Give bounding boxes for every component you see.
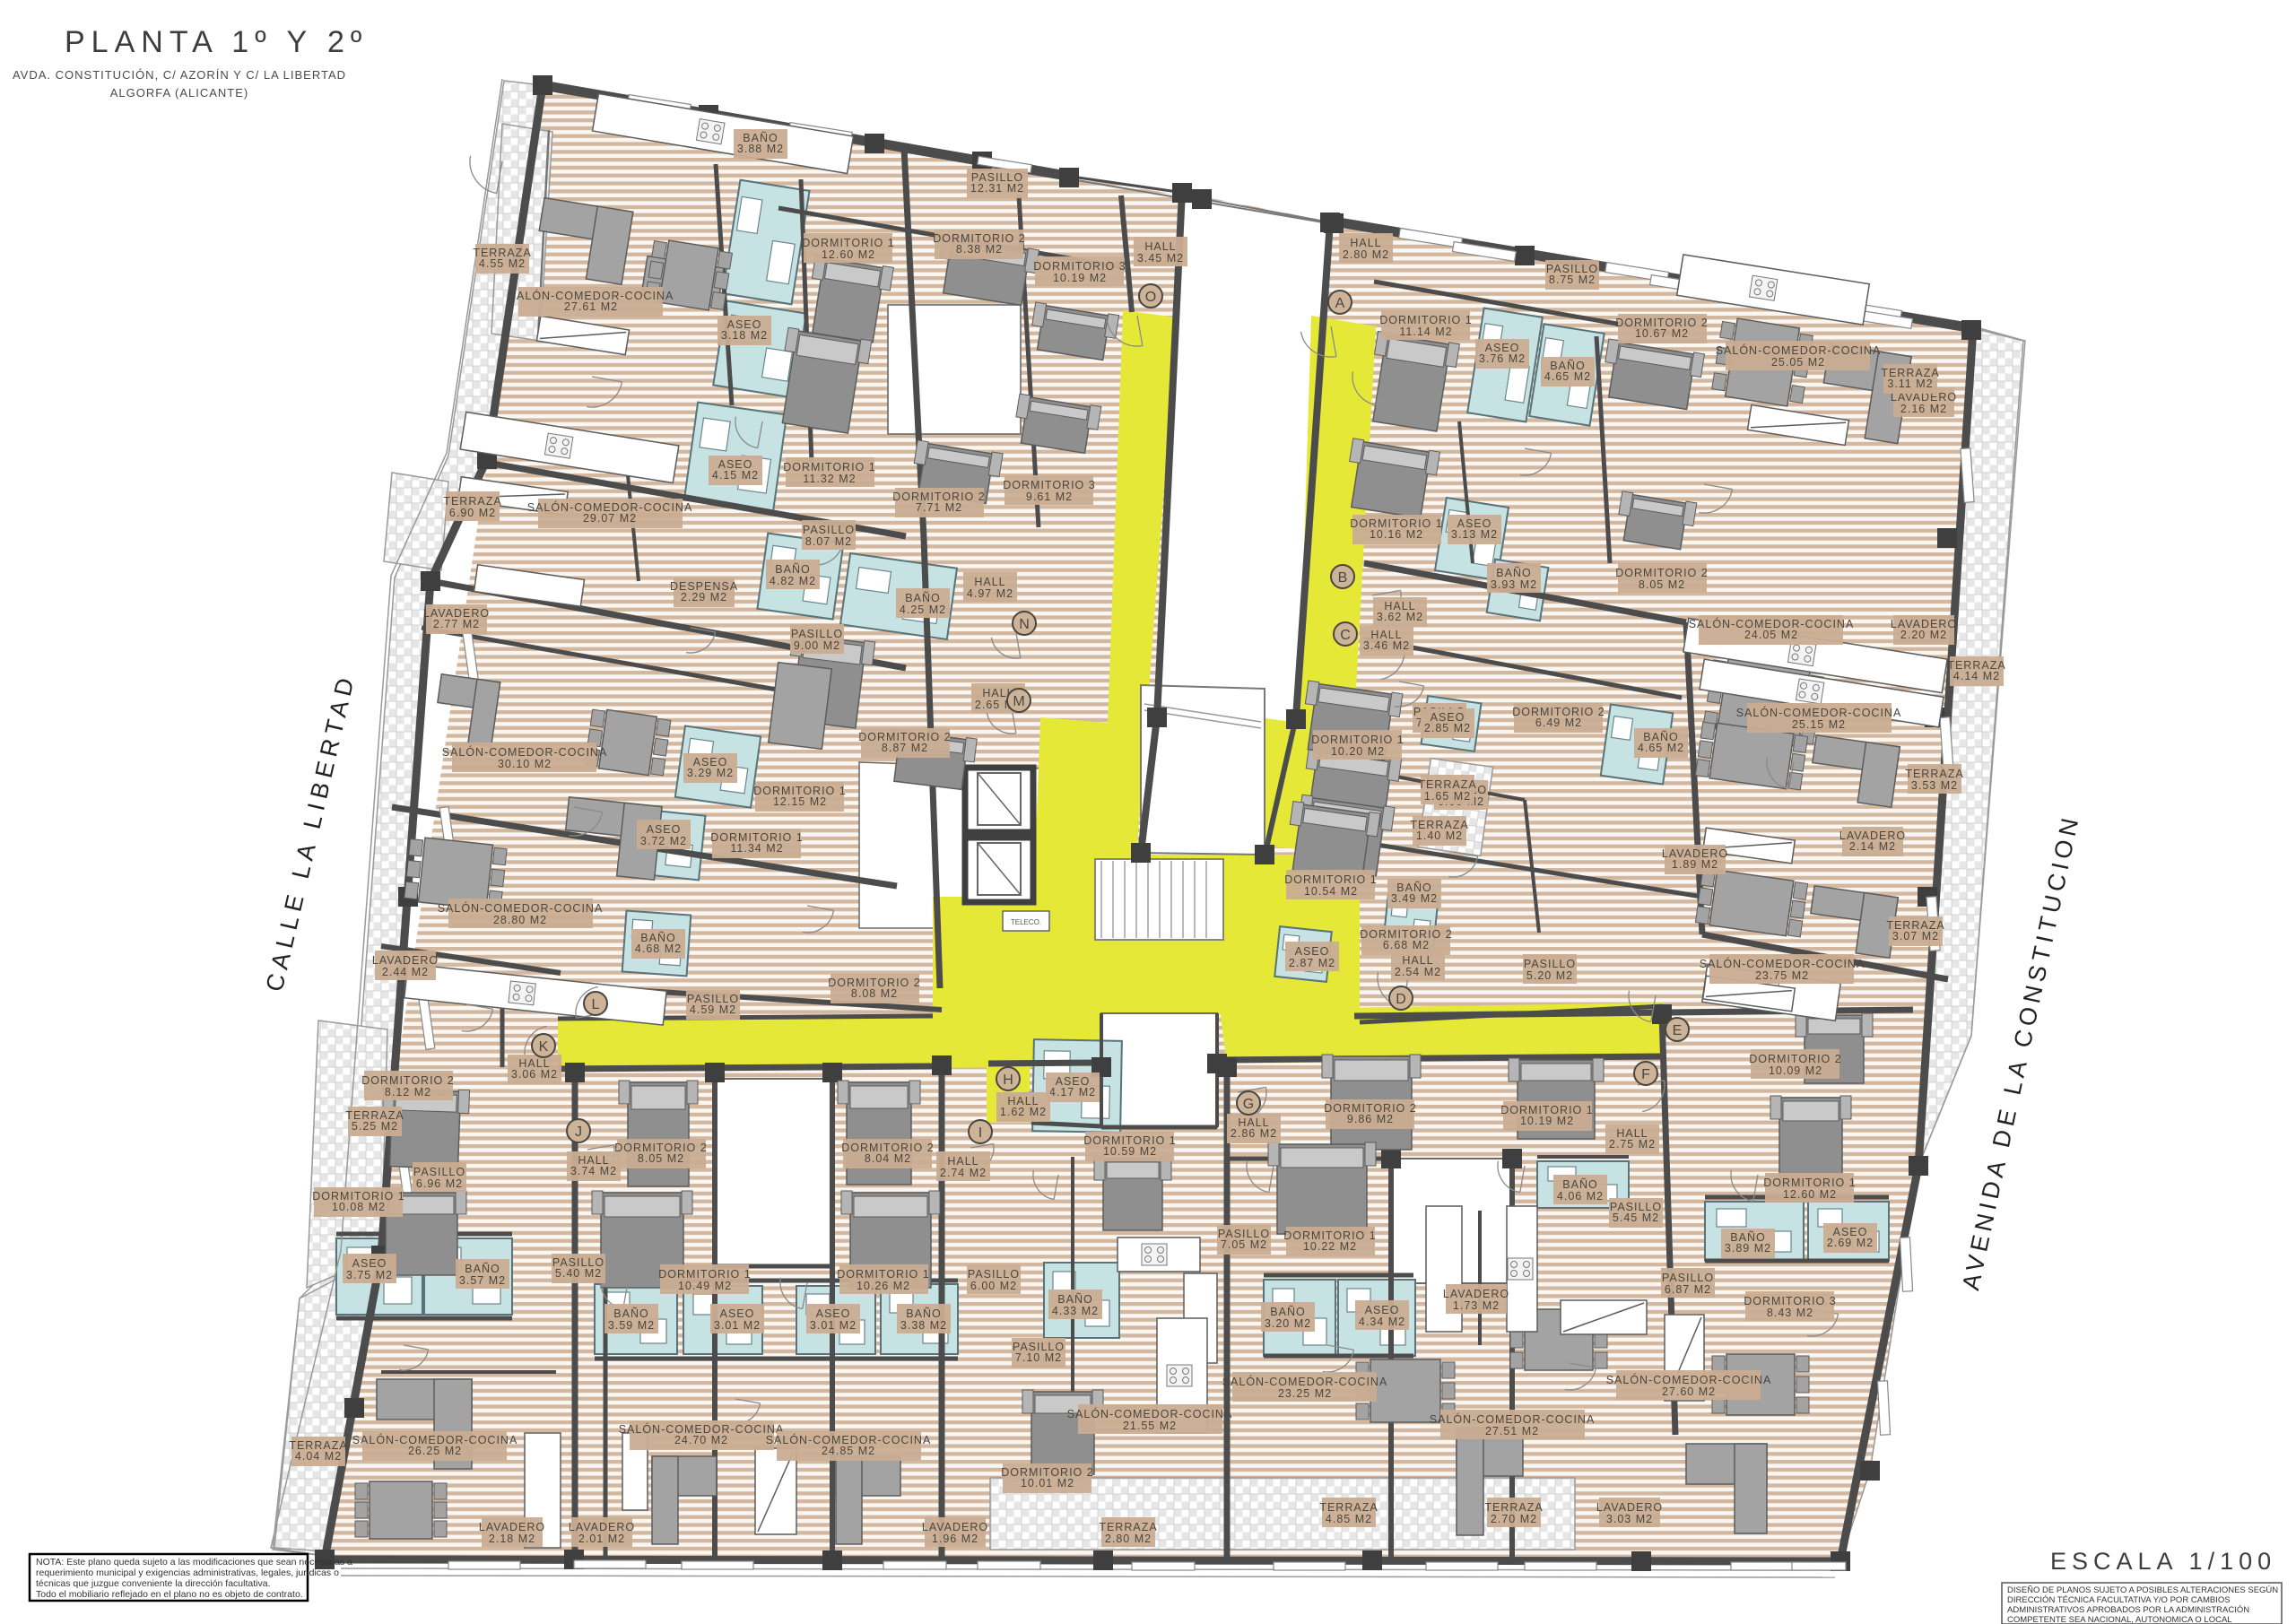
- svg-text:7.05 M2: 7.05 M2: [1221, 1238, 1267, 1251]
- svg-text:E: E: [1673, 1023, 1683, 1038]
- svg-text:TERRAZA: TERRAZA: [1319, 1501, 1378, 1514]
- svg-text:10.08 M2: 10.08 M2: [332, 1201, 386, 1213]
- svg-text:PASILLO: PASILLO: [1524, 958, 1576, 970]
- svg-text:3.07 M2: 3.07 M2: [1892, 930, 1939, 942]
- svg-text:10.54 M2: 10.54 M2: [1304, 885, 1358, 898]
- svg-text:ASEO: ASEO: [647, 823, 682, 836]
- svg-text:H: H: [1003, 1073, 1013, 1088]
- svg-text:PASILLO: PASILLO: [413, 1166, 465, 1178]
- svg-text:11.34 M2: 11.34 M2: [730, 842, 783, 855]
- svg-text:I: I: [978, 1125, 982, 1141]
- svg-text:BAÑO: BAÑO: [1496, 567, 1531, 579]
- svg-text:4.04 M2: 4.04 M2: [295, 1450, 342, 1463]
- svg-text:TERRAZA: TERRAZA: [1905, 768, 1963, 780]
- svg-text:8.87 M2: 8.87 M2: [882, 742, 928, 754]
- svg-text:A: A: [1335, 296, 1345, 311]
- svg-text:ADMINISTRATIVOS APROBADOS POR: ADMINISTRATIVOS APROBADOS POR LA ADMINIS…: [2007, 1605, 2249, 1615]
- svg-text:DIRECCIÓN TÉCNICA FACULTATIVA: DIRECCIÓN TÉCNICA FACULTATIVA Y/O POR CA…: [2007, 1595, 2231, 1605]
- svg-text:ASEO: ASEO: [720, 1307, 755, 1320]
- svg-text:PLANTA 1º Y 2º: PLANTA 1º Y 2º: [65, 25, 368, 59]
- svg-text:LAVADERO: LAVADERO: [569, 1521, 635, 1533]
- svg-text:9.00 M2: 9.00 M2: [794, 639, 840, 652]
- svg-text:8.38 M2: 8.38 M2: [956, 243, 1003, 256]
- svg-text:8.07 M2: 8.07 M2: [805, 535, 852, 548]
- svg-text:3.01 M2: 3.01 M2: [810, 1319, 857, 1332]
- svg-text:BAÑO: BAÑO: [1270, 1306, 1305, 1318]
- svg-text:2.18 M2: 2.18 M2: [489, 1533, 535, 1545]
- svg-text:8.04 M2: 8.04 M2: [865, 1152, 911, 1165]
- svg-text:11.14 M2: 11.14 M2: [1399, 326, 1452, 338]
- svg-text:NOTA: Este plano queda sujeto: NOTA: Este plano queda sujeto a las modi…: [36, 1557, 352, 1568]
- svg-text:PASILLO: PASILLO: [1662, 1272, 1714, 1284]
- svg-text:24.05 M2: 24.05 M2: [1744, 629, 1798, 641]
- svg-text:4.06 M2: 4.06 M2: [1557, 1190, 1604, 1203]
- svg-text:ALGORFA (ALICANTE): ALGORFA (ALICANTE): [110, 86, 249, 100]
- svg-text:27.51 M2: 27.51 M2: [1485, 1425, 1539, 1437]
- svg-text:6.96 M2: 6.96 M2: [416, 1177, 463, 1190]
- svg-text:4.14 M2: 4.14 M2: [1953, 670, 2000, 682]
- svg-text:HALL: HALL: [1402, 954, 1433, 967]
- svg-text:LAVADERO: LAVADERO: [922, 1521, 988, 1533]
- svg-text:2.69 M2: 2.69 M2: [1827, 1237, 1874, 1249]
- svg-text:DORMITORIO 3: DORMITORIO 3: [1744, 1295, 1836, 1307]
- svg-text:3.57 M2: 3.57 M2: [459, 1274, 506, 1287]
- svg-text:4.65 M2: 4.65 M2: [1638, 742, 1684, 754]
- svg-text:2.85 M2: 2.85 M2: [1424, 722, 1471, 734]
- svg-text:4.68 M2: 4.68 M2: [635, 942, 682, 955]
- svg-text:G: G: [1243, 1097, 1254, 1112]
- svg-text:SALÓN-COMEDOR-COCINA: SALÓN-COMEDOR-COCINA: [1067, 1407, 1233, 1420]
- svg-text:3.88 M2: 3.88 M2: [737, 143, 784, 155]
- svg-text:3.74 M2: 3.74 M2: [570, 1165, 617, 1177]
- svg-text:LAVADERO: LAVADERO: [372, 954, 439, 967]
- svg-text:8.05 M2: 8.05 M2: [638, 1152, 684, 1165]
- svg-text:27.61 M2: 27.61 M2: [564, 300, 618, 313]
- svg-text:4.15 M2: 4.15 M2: [712, 469, 759, 482]
- svg-text:4.82 M2: 4.82 M2: [770, 575, 816, 587]
- svg-text:12.31 M2: 12.31 M2: [970, 182, 1024, 195]
- svg-text:BAÑO: BAÑO: [613, 1307, 648, 1320]
- svg-text:6.87 M2: 6.87 M2: [1665, 1283, 1711, 1296]
- svg-text:3.62 M2: 3.62 M2: [1377, 611, 1423, 623]
- svg-text:ASEO: ASEO: [816, 1307, 851, 1320]
- svg-text:LAVADERO: LAVADERO: [479, 1521, 545, 1533]
- svg-text:26.25 M2: 26.25 M2: [408, 1445, 462, 1457]
- svg-text:25.15 M2: 25.15 M2: [1792, 718, 1846, 731]
- svg-text:SALÓN-COMEDOR-COCINA: SALÓN-COMEDOR-COCINA: [1222, 1375, 1388, 1388]
- svg-text:9.61 M2: 9.61 M2: [1026, 491, 1073, 503]
- svg-text:4.33 M2: 4.33 M2: [1052, 1305, 1099, 1317]
- svg-text:10.67 M2: 10.67 M2: [1635, 327, 1689, 340]
- svg-text:TELECO.: TELECO.: [1011, 918, 1041, 926]
- svg-text:SALÓN-COMEDOR-COCINA: SALÓN-COMEDOR-COCINA: [1430, 1412, 1596, 1426]
- svg-text:2.74 M2: 2.74 M2: [940, 1167, 987, 1179]
- svg-text:3.89 M2: 3.89 M2: [1725, 1242, 1771, 1255]
- svg-text:DISEÑO DE PLANOS SUJETO A POSI: DISEÑO DE PLANOS SUJETO A POSIBLES ALTER…: [2007, 1585, 2278, 1595]
- svg-text:9.86 M2: 9.86 M2: [1347, 1113, 1394, 1125]
- svg-text:ASEO: ASEO: [1295, 945, 1330, 958]
- svg-text:4.34 M2: 4.34 M2: [1359, 1316, 1405, 1328]
- svg-text:3.45 M2: 3.45 M2: [1137, 252, 1184, 265]
- svg-text:29.07 M2: 29.07 M2: [583, 512, 637, 525]
- svg-text:3.03 M2: 3.03 M2: [1606, 1513, 1653, 1525]
- svg-text:DORMITORIO 1: DORMITORIO 1: [1763, 1177, 1856, 1189]
- svg-text:DORMITORIO 1: DORMITORIO 1: [1379, 314, 1472, 326]
- svg-text:requerimiento municipal y exig: requerimiento municipal y exigencias adm…: [36, 1568, 339, 1578]
- svg-text:3.46 M2: 3.46 M2: [1363, 639, 1410, 652]
- svg-text:Todo el mobiliario reflejado e: Todo el mobiliario reflejado en el plano…: [36, 1589, 303, 1600]
- svg-text:2.14 M2: 2.14 M2: [1849, 840, 1896, 853]
- svg-text:10.49 M2: 10.49 M2: [678, 1280, 732, 1292]
- svg-text:3.13 M2: 3.13 M2: [1451, 528, 1498, 541]
- svg-text:3.76 M2: 3.76 M2: [1479, 352, 1526, 365]
- svg-text:2.01 M2: 2.01 M2: [578, 1533, 625, 1545]
- svg-text:11.32 M2: 11.32 M2: [803, 473, 856, 485]
- svg-text:N: N: [1019, 617, 1030, 632]
- svg-text:SALÓN-COMEDOR-COCINA: SALÓN-COMEDOR-COCINA: [1700, 957, 1865, 970]
- svg-text:BAÑO: BAÑO: [775, 563, 810, 576]
- svg-text:PASILLO: PASILLO: [791, 628, 843, 640]
- svg-text:técnicas que juzgue convenient: técnicas que juzgue conveniente la direc…: [36, 1578, 271, 1589]
- svg-text:2.54 M2: 2.54 M2: [1395, 966, 1441, 978]
- svg-text:2.80 M2: 2.80 M2: [1343, 248, 1389, 261]
- svg-text:O: O: [1145, 290, 1156, 305]
- svg-text:28.80 M2: 28.80 M2: [493, 914, 547, 926]
- svg-text:6.49 M2: 6.49 M2: [1535, 716, 1582, 729]
- svg-text:HALL: HALL: [974, 576, 1005, 588]
- svg-text:J: J: [575, 1125, 582, 1140]
- svg-text:5.45 M2: 5.45 M2: [1613, 1211, 1659, 1224]
- svg-text:TERRAZA: TERRAZA: [1099, 1521, 1157, 1533]
- svg-text:8.05 M2: 8.05 M2: [1639, 578, 1685, 591]
- svg-text:3.72 M2: 3.72 M2: [640, 835, 687, 847]
- svg-text:ASEO: ASEO: [1365, 1304, 1400, 1316]
- svg-text:DORMITORIO 1: DORMITORIO 1: [1311, 734, 1404, 746]
- svg-text:BAÑO: BAÑO: [465, 1263, 500, 1275]
- svg-text:5.40 M2: 5.40 M2: [555, 1267, 602, 1280]
- svg-text:1.89 M2: 1.89 M2: [1672, 858, 1718, 871]
- svg-text:27.60 M2: 27.60 M2: [1662, 1385, 1716, 1398]
- svg-text:DORMITORIO 2: DORMITORIO 2: [1615, 567, 1708, 579]
- svg-text:C: C: [1340, 628, 1351, 643]
- svg-text:3.38 M2: 3.38 M2: [900, 1319, 947, 1332]
- svg-text:F: F: [1641, 1067, 1650, 1082]
- svg-text:10.19 M2: 10.19 M2: [1520, 1115, 1574, 1127]
- svg-text:TERRAZA: TERRAZA: [1484, 1501, 1543, 1514]
- svg-text:3.49 M2: 3.49 M2: [1391, 892, 1438, 905]
- svg-text:10.20 M2: 10.20 M2: [1331, 745, 1385, 758]
- svg-text:12.15 M2: 12.15 M2: [773, 795, 827, 808]
- svg-text:3.53 M2: 3.53 M2: [1911, 779, 1958, 792]
- svg-text:SALÓN-COMEDOR-COCINA: SALÓN-COMEDOR-COCINA: [1736, 706, 1902, 719]
- svg-text:5.25 M2: 5.25 M2: [352, 1120, 398, 1133]
- svg-text:L: L: [592, 997, 600, 1012]
- svg-text:4.65 M2: 4.65 M2: [1544, 370, 1591, 383]
- svg-text:23.75 M2: 23.75 M2: [1755, 969, 1809, 982]
- svg-text:BAÑO: BAÑO: [905, 592, 940, 604]
- svg-text:K: K: [539, 1039, 549, 1055]
- svg-text:2.70 M2: 2.70 M2: [1491, 1513, 1537, 1525]
- svg-text:10.01 M2: 10.01 M2: [1021, 1477, 1074, 1489]
- svg-text:10.22 M2: 10.22 M2: [1303, 1240, 1357, 1253]
- svg-text:5.20 M2: 5.20 M2: [1526, 969, 1573, 982]
- svg-text:10.26 M2: 10.26 M2: [857, 1280, 910, 1292]
- svg-text:2.20 M2: 2.20 M2: [1900, 629, 1947, 641]
- svg-text:D: D: [1396, 992, 1406, 1007]
- svg-text:8.08 M2: 8.08 M2: [851, 987, 898, 1000]
- svg-text:3.01 M2: 3.01 M2: [714, 1319, 761, 1332]
- svg-text:8.43 M2: 8.43 M2: [1767, 1307, 1813, 1319]
- svg-text:10.19 M2: 10.19 M2: [1053, 272, 1107, 284]
- svg-text:DORMITORIO 1: DORMITORIO 1: [837, 1268, 929, 1281]
- svg-text:ASEO: ASEO: [352, 1257, 387, 1270]
- svg-text:2.86 M2: 2.86 M2: [1231, 1127, 1277, 1140]
- svg-text:2.44 M2: 2.44 M2: [382, 966, 429, 978]
- svg-text:2.16 M2: 2.16 M2: [1900, 403, 1947, 415]
- svg-text:24.85 M2: 24.85 M2: [822, 1445, 875, 1457]
- svg-text:BAÑO: BAÑO: [1057, 1293, 1092, 1306]
- svg-text:PASILLO: PASILLO: [968, 1268, 1020, 1281]
- svg-text:2.29 M2: 2.29 M2: [681, 591, 727, 604]
- svg-text:3.06 M2: 3.06 M2: [511, 1068, 558, 1081]
- svg-text:1.96 M2: 1.96 M2: [932, 1533, 978, 1545]
- svg-text:1.73 M2: 1.73 M2: [1453, 1299, 1500, 1312]
- svg-text:3.59 M2: 3.59 M2: [608, 1319, 655, 1332]
- svg-text:DORMITORIO 3: DORMITORIO 3: [1033, 260, 1126, 273]
- svg-text:1.62 M2: 1.62 M2: [1000, 1106, 1047, 1118]
- svg-text:1.40 M2: 1.40 M2: [1416, 829, 1463, 842]
- svg-text:AVDA. CONSTITUCIÓN, C/ AZORÍN: AVDA. CONSTITUCIÓN, C/ AZORÍN Y C/ LA LI…: [13, 68, 346, 82]
- svg-text:COMPETENTE SEA NACIONAL, AUTON: COMPETENTE SEA NACIONAL, AUTONOMICA O LO…: [2007, 1615, 2232, 1624]
- svg-text:2.75 M2: 2.75 M2: [1609, 1138, 1656, 1151]
- svg-text:4.17 M2: 4.17 M2: [1049, 1086, 1096, 1099]
- svg-text:HALL: HALL: [1144, 240, 1176, 253]
- svg-text:ESCALA 1/100: ESCALA 1/100: [2050, 1548, 2276, 1575]
- svg-text:10.09 M2: 10.09 M2: [1769, 1064, 1822, 1077]
- svg-text:6.68 M2: 6.68 M2: [1383, 939, 1430, 951]
- svg-text:SALÓN-COMEDOR-COCINA: SALÓN-COMEDOR-COCINA: [1606, 1373, 1772, 1386]
- svg-text:SALÓN-COMEDOR-COCINA: SALÓN-COMEDOR-COCINA: [442, 745, 608, 759]
- svg-text:24.70 M2: 24.70 M2: [674, 1434, 728, 1446]
- svg-text:4.55 M2: 4.55 M2: [479, 257, 526, 270]
- svg-text:10.59 M2: 10.59 M2: [1103, 1145, 1157, 1158]
- svg-text:DORMITORIO 1: DORMITORIO 1: [658, 1268, 751, 1281]
- svg-text:4.59 M2: 4.59 M2: [690, 1003, 736, 1016]
- svg-text:DORMITORIO 3: DORMITORIO 3: [1003, 479, 1095, 491]
- svg-text:DORMITORIO 1: DORMITORIO 1: [802, 237, 894, 249]
- svg-text:HALL: HALL: [1350, 237, 1381, 249]
- svg-text:M: M: [1013, 694, 1024, 709]
- svg-text:BAÑO: BAÑO: [906, 1307, 941, 1320]
- svg-text:TERRAZA: TERRAZA: [1418, 778, 1476, 791]
- svg-text:B: B: [1338, 570, 1348, 586]
- svg-text:21.55 M2: 21.55 M2: [1123, 1420, 1177, 1432]
- svg-text:LAVADERO: LAVADERO: [1443, 1288, 1509, 1300]
- svg-text:LAVADERO: LAVADERO: [1596, 1501, 1663, 1514]
- svg-text:23.25 M2: 23.25 M2: [1278, 1387, 1332, 1400]
- svg-text:PASILLO: PASILLO: [803, 524, 855, 536]
- svg-text:8.75 M2: 8.75 M2: [1549, 274, 1596, 286]
- svg-text:SALÓN-COMEDOR-COCINA: SALÓN-COMEDOR-COCINA: [1716, 343, 1882, 357]
- svg-text:DORMITORIO 1: DORMITORIO 1: [783, 461, 875, 473]
- svg-text:4.97 M2: 4.97 M2: [967, 587, 1013, 600]
- svg-text:12.60 M2: 12.60 M2: [1783, 1188, 1837, 1201]
- svg-text:DORMITORIO 2: DORMITORIO 2: [1749, 1053, 1841, 1065]
- svg-text:4.25 M2: 4.25 M2: [900, 604, 946, 616]
- svg-text:HALL: HALL: [947, 1155, 978, 1168]
- svg-text:DORMITORIO 1: DORMITORIO 1: [1284, 873, 1377, 886]
- svg-text:DORMITORIO 2: DORMITORIO 2: [361, 1074, 454, 1087]
- svg-text:12.60 M2: 12.60 M2: [822, 248, 875, 261]
- svg-text:7.71 M2: 7.71 M2: [916, 501, 962, 514]
- svg-text:4.85 M2: 4.85 M2: [1326, 1513, 1372, 1525]
- svg-text:10.16 M2: 10.16 M2: [1370, 528, 1423, 541]
- svg-text:6.90 M2: 6.90 M2: [449, 507, 496, 519]
- svg-text:2.77 M2: 2.77 M2: [433, 618, 480, 630]
- svg-text:1.65 M2: 1.65 M2: [1424, 790, 1471, 803]
- svg-text:8.12 M2: 8.12 M2: [385, 1086, 431, 1099]
- svg-text:BAÑO: BAÑO: [1562, 1178, 1597, 1191]
- svg-text:7.10 M2: 7.10 M2: [1015, 1351, 1062, 1364]
- svg-text:30.10 M2: 30.10 M2: [498, 758, 552, 770]
- svg-text:3.93 M2: 3.93 M2: [1491, 578, 1537, 591]
- svg-text:3.75 M2: 3.75 M2: [346, 1269, 393, 1281]
- svg-text:6.00 M2: 6.00 M2: [970, 1280, 1017, 1292]
- svg-text:TERRAZA: TERRAZA: [443, 495, 501, 508]
- svg-text:3.20 M2: 3.20 M2: [1265, 1317, 1311, 1330]
- svg-text:2.80 M2: 2.80 M2: [1105, 1533, 1152, 1545]
- svg-text:25.05 M2: 25.05 M2: [1771, 356, 1825, 369]
- svg-text:3.29 M2: 3.29 M2: [687, 767, 734, 779]
- svg-text:SALÓN-COMEDOR-COCINA: SALÓN-COMEDOR-COCINA: [438, 901, 604, 915]
- svg-text:3.11 M2: 3.11 M2: [1887, 378, 1933, 390]
- svg-text:2.87 M2: 2.87 M2: [1289, 957, 1335, 969]
- svg-text:3.18 M2: 3.18 M2: [721, 329, 768, 342]
